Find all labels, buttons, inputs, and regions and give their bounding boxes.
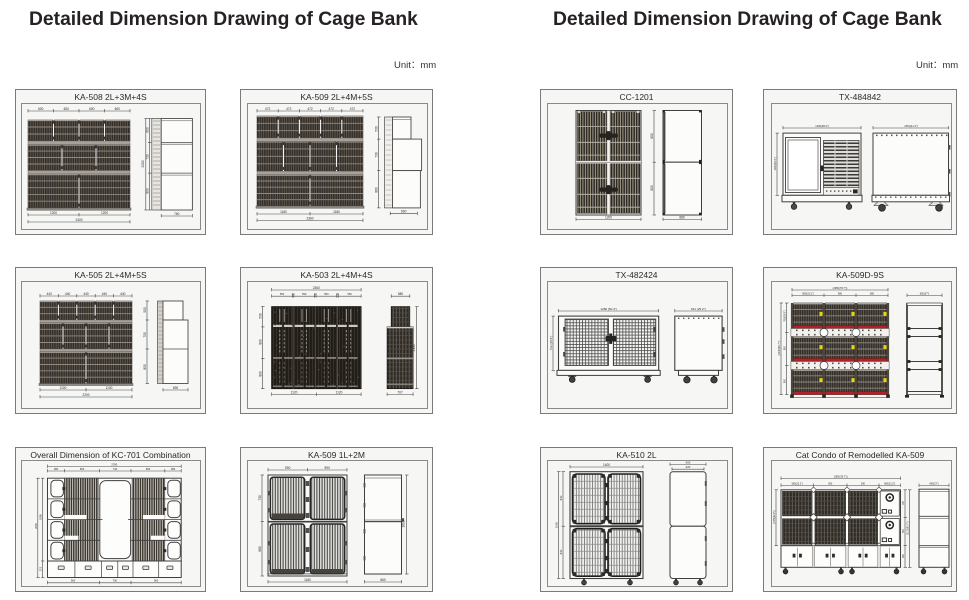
svg-text:1610: 1610 xyxy=(402,520,406,527)
svg-text:380: 380 xyxy=(54,467,59,471)
svg-text:2360: 2360 xyxy=(313,286,320,290)
svg-text:830: 830 xyxy=(559,549,563,554)
svg-text:680: 680 xyxy=(679,215,685,219)
svg-text:750: 750 xyxy=(143,332,147,338)
svg-text:590: 590 xyxy=(285,466,291,470)
svg-text:2780: 2780 xyxy=(111,462,117,466)
svg-text:530: 530 xyxy=(259,313,263,319)
svg-text:600: 600 xyxy=(650,133,654,139)
svg-text:1400: 1400 xyxy=(603,463,610,467)
svg-text:1120: 1120 xyxy=(291,390,298,394)
svg-text:760(29.9″): 760(29.9″) xyxy=(784,310,787,322)
svg-text:1100(43.4″): 1100(43.4″) xyxy=(773,157,777,170)
svg-text:800: 800 xyxy=(259,339,263,345)
svg-text:2400: 2400 xyxy=(75,218,82,222)
svg-text:1180: 1180 xyxy=(333,210,340,214)
svg-text:30: 30 xyxy=(314,292,317,296)
svg-text:2200: 2200 xyxy=(141,160,145,167)
svg-text:700: 700 xyxy=(113,579,118,583)
svg-text:600: 600 xyxy=(64,107,70,111)
svg-text:690: 690 xyxy=(401,210,407,214)
svg-text:600: 600 xyxy=(115,107,121,111)
svg-text:(2130(83.7″)): (2130(83.7″)) xyxy=(908,521,910,535)
svg-text:1120: 1120 xyxy=(336,390,343,394)
svg-text:550: 550 xyxy=(347,292,352,296)
svg-text:(2950(78.7″)): (2950(78.7″)) xyxy=(834,475,848,478)
svg-text:2200: 2200 xyxy=(82,393,89,397)
svg-text:660: 660 xyxy=(686,461,691,464)
svg-text:980(23.2″): 980(23.2″) xyxy=(792,482,803,485)
svg-text:980(23.2″): 980(23.2″) xyxy=(802,292,814,295)
svg-text:500: 500 xyxy=(143,307,147,313)
svg-text:960: 960 xyxy=(71,579,76,583)
svg-text:(2950(78.7″)): (2950(78.7″)) xyxy=(833,287,848,290)
svg-text:830: 830 xyxy=(559,495,563,500)
svg-text:2130: 2130 xyxy=(412,344,416,351)
svg-text:1280 (50.4″): 1280 (50.4″) xyxy=(600,307,616,311)
svg-text:550: 550 xyxy=(280,292,285,296)
svg-text:370: 370 xyxy=(39,566,43,571)
svg-text:1200: 1200 xyxy=(50,211,57,215)
svg-text:(1580(62.2″)): (1580(62.2″)) xyxy=(774,510,776,524)
svg-text:2050: 2050 xyxy=(34,523,38,529)
svg-text:707: 707 xyxy=(397,390,403,394)
svg-text:730: 730 xyxy=(258,495,262,501)
svg-text:1100: 1100 xyxy=(60,386,67,390)
svg-text:880: 880 xyxy=(258,546,262,552)
svg-text:1200: 1200 xyxy=(605,215,612,219)
svg-text:690(27″): 690(27″) xyxy=(920,292,930,295)
svg-text:880: 880 xyxy=(375,187,379,193)
svg-text:690: 690 xyxy=(173,386,179,390)
svg-text:440: 440 xyxy=(120,292,126,296)
svg-text:590: 590 xyxy=(861,482,866,485)
svg-text:530: 530 xyxy=(375,126,379,132)
svg-text:1180: 1180 xyxy=(304,578,311,582)
svg-text:980: 980 xyxy=(870,292,875,295)
svg-text:1680: 1680 xyxy=(39,514,43,520)
svg-text:(2130(83.7″)): (2130(83.7″)) xyxy=(778,341,781,356)
svg-text:650: 650 xyxy=(80,467,85,471)
svg-text:690(27″): 690(27″) xyxy=(929,482,938,485)
svg-text:730: 730 xyxy=(375,152,379,158)
svg-text:30: 30 xyxy=(336,292,339,296)
svg-text:850: 850 xyxy=(143,364,147,370)
svg-text:472: 472 xyxy=(286,107,292,111)
svg-text:550: 550 xyxy=(302,292,307,296)
svg-text:440: 440 xyxy=(47,292,53,296)
svg-text:590: 590 xyxy=(325,466,331,470)
svg-text:660: 660 xyxy=(380,578,386,582)
svg-text:580: 580 xyxy=(398,292,404,296)
svg-text:440: 440 xyxy=(102,292,108,296)
svg-text:800: 800 xyxy=(259,371,263,377)
svg-text:1200(38.4″): 1200(38.4″) xyxy=(815,124,829,128)
svg-text:30: 30 xyxy=(292,292,295,296)
svg-text:440: 440 xyxy=(65,292,71,296)
svg-text:600: 600 xyxy=(38,107,44,111)
svg-text:641 (25.2″): 641 (25.2″) xyxy=(691,307,706,311)
svg-text:590: 590 xyxy=(828,482,833,485)
svg-text:960: 960 xyxy=(154,579,159,583)
svg-text:1660: 1660 xyxy=(555,521,559,528)
svg-text:620: 620 xyxy=(686,465,691,469)
svg-text:760: 760 xyxy=(174,212,180,216)
svg-text:472: 472 xyxy=(350,107,356,111)
svg-text:472: 472 xyxy=(265,107,271,111)
svg-text:472: 472 xyxy=(307,107,313,111)
svg-text:800: 800 xyxy=(784,378,787,383)
svg-text:600: 600 xyxy=(650,185,654,191)
svg-text:600: 600 xyxy=(89,107,95,111)
svg-text:440: 440 xyxy=(83,292,89,296)
svg-text:732 (28.8″): 732 (28.8″) xyxy=(549,336,553,351)
svg-text:550: 550 xyxy=(324,292,329,296)
svg-text:1200: 1200 xyxy=(101,211,108,215)
svg-text:2360: 2360 xyxy=(306,216,313,220)
svg-text:740: 740 xyxy=(113,467,118,471)
svg-text:380: 380 xyxy=(171,467,176,471)
svg-text:800: 800 xyxy=(784,345,787,350)
svg-text:980(23.2″): 980(23.2″) xyxy=(884,482,895,485)
svg-text:1180: 1180 xyxy=(280,210,287,214)
svg-text:650: 650 xyxy=(146,467,151,471)
svg-text:1100: 1100 xyxy=(106,386,113,390)
svg-text:1051(41.4″): 1051(41.4″) xyxy=(904,124,918,128)
svg-text:980: 980 xyxy=(838,292,843,295)
svg-text:472: 472 xyxy=(329,107,335,111)
